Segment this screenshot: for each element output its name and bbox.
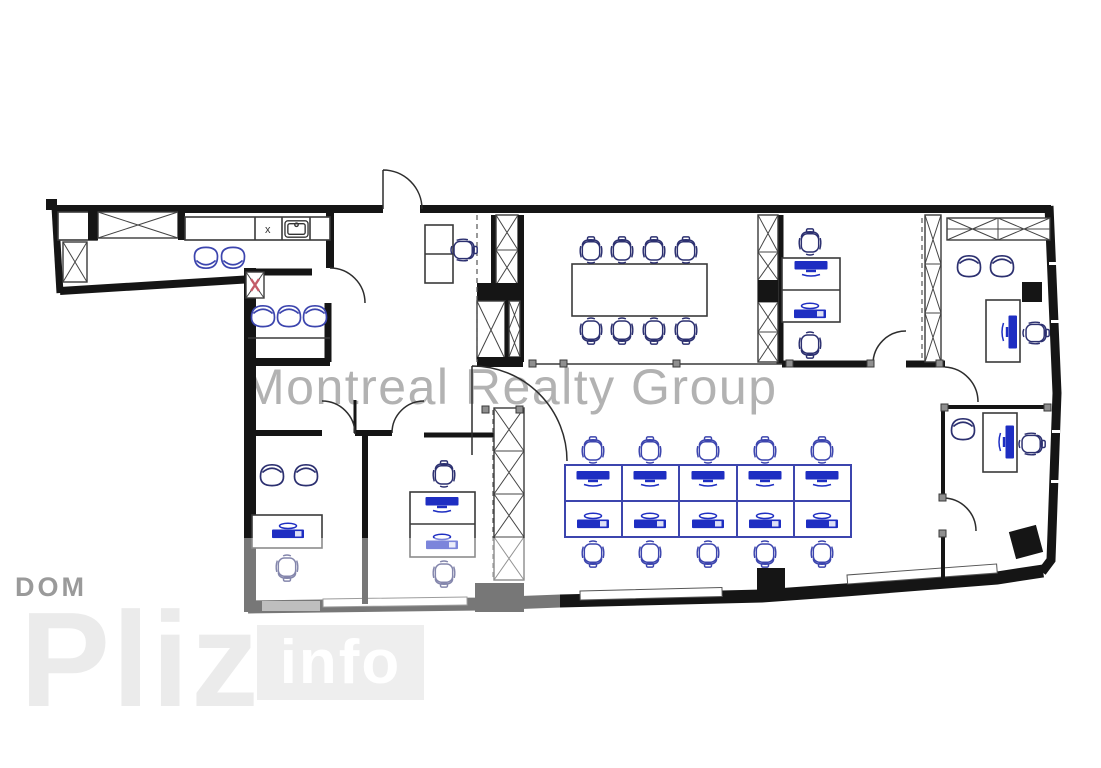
office-chair bbox=[697, 437, 719, 463]
kitchen-area bbox=[195, 247, 245, 268]
node bbox=[673, 360, 680, 367]
node bbox=[482, 406, 489, 413]
node bbox=[941, 404, 948, 411]
conference-table bbox=[572, 264, 707, 316]
office-chair bbox=[451, 239, 477, 261]
conference-chair bbox=[643, 237, 665, 263]
conference-chair bbox=[580, 318, 602, 344]
door-arc bbox=[322, 401, 355, 434]
office-chair bbox=[799, 229, 821, 255]
door-arc bbox=[330, 268, 365, 303]
wall-tick bbox=[1052, 430, 1060, 433]
conference-chair bbox=[675, 237, 697, 263]
office-chair bbox=[639, 437, 661, 463]
wall-segment bbox=[1042, 206, 1057, 572]
node bbox=[560, 360, 567, 367]
office-top-right bbox=[958, 256, 1050, 362]
wall-tick bbox=[1051, 320, 1059, 323]
door-jamb bbox=[375, 205, 383, 213]
node bbox=[516, 406, 523, 413]
office-chair bbox=[799, 332, 821, 358]
waiting-chair bbox=[304, 306, 327, 327]
armchair bbox=[295, 465, 318, 486]
wall-pier bbox=[178, 209, 185, 240]
floorplan-image: Montreal Realty Group DOM Pliz info bbox=[0, 0, 1101, 768]
conference-shaft bbox=[758, 215, 778, 362]
watermark-fade bbox=[238, 538, 560, 614]
conference-chair bbox=[675, 318, 697, 344]
shaft-band bbox=[477, 357, 523, 367]
waiting-chair bbox=[252, 306, 275, 327]
wall-tick bbox=[1049, 262, 1057, 265]
floorplan-svg: x bbox=[0, 0, 1101, 768]
shaft-hatched bbox=[509, 301, 520, 357]
conference-room bbox=[572, 237, 707, 344]
armchair bbox=[958, 256, 981, 277]
door-arc bbox=[943, 498, 976, 531]
shaft-wall bbox=[518, 215, 524, 285]
shaft-wall bbox=[491, 215, 496, 285]
column bbox=[758, 280, 778, 302]
node bbox=[529, 360, 536, 367]
node bbox=[867, 360, 874, 367]
reception bbox=[425, 225, 477, 283]
wall-corner-post bbox=[46, 199, 57, 210]
door-arc bbox=[392, 401, 424, 433]
conference-chair bbox=[580, 237, 602, 263]
shaft-band bbox=[477, 283, 523, 301]
office-chair bbox=[697, 541, 719, 567]
wardrobe-top-right bbox=[947, 218, 1050, 240]
office-chair bbox=[639, 541, 661, 567]
column-diamond bbox=[1009, 525, 1043, 559]
entrance-door-arc bbox=[383, 170, 422, 209]
node bbox=[939, 494, 946, 501]
conference-chair bbox=[643, 318, 665, 344]
office-chair bbox=[582, 437, 604, 463]
conference-chair bbox=[611, 318, 633, 344]
wall-tick bbox=[1051, 480, 1059, 483]
sink-icon bbox=[285, 221, 308, 237]
office-chair bbox=[754, 437, 776, 463]
stool-chair bbox=[222, 247, 245, 268]
door-arc bbox=[945, 367, 978, 402]
kitchen-cell-label: x bbox=[265, 224, 271, 236]
right-shaft bbox=[925, 215, 941, 362]
office-two-desks bbox=[782, 229, 840, 358]
wall-segment bbox=[60, 279, 253, 291]
office-chair bbox=[433, 461, 455, 487]
elevator-core bbox=[477, 215, 524, 367]
column bbox=[1022, 282, 1042, 302]
armchair bbox=[991, 256, 1014, 277]
office-chair bbox=[1019, 433, 1045, 455]
open-office bbox=[565, 437, 851, 600]
office-mid-right bbox=[952, 413, 1046, 559]
office-chair bbox=[754, 541, 776, 567]
wall-pier bbox=[757, 568, 785, 600]
office-chair bbox=[811, 437, 833, 463]
waiting-room bbox=[248, 306, 330, 338]
node bbox=[786, 360, 793, 367]
stool-chair bbox=[195, 247, 218, 268]
node bbox=[936, 360, 943, 367]
node bbox=[939, 530, 946, 537]
armchair bbox=[261, 465, 284, 486]
waiting-chair bbox=[278, 306, 301, 327]
conference-chair bbox=[611, 237, 633, 263]
door-arc bbox=[873, 331, 906, 364]
office-chair bbox=[582, 541, 604, 567]
armchair bbox=[952, 419, 975, 440]
office-chair bbox=[811, 541, 833, 567]
node bbox=[1044, 404, 1051, 411]
column-hatched-red bbox=[246, 272, 264, 298]
wall-pier bbox=[88, 209, 98, 240]
office-chair bbox=[1023, 322, 1049, 344]
